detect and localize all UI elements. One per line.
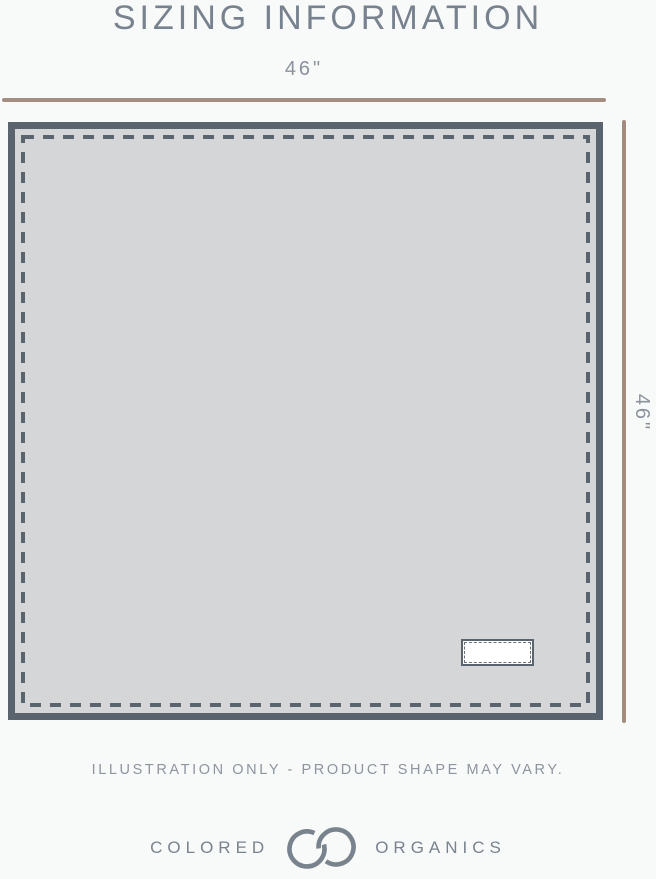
blanket-illustration: [8, 122, 603, 720]
illustration-caption: ILLUSTRATION ONLY - PRODUCT SHAPE MAY VA…: [0, 762, 656, 778]
co-monogram-icon: [284, 818, 360, 878]
brand-name-colored: COLORED: [150, 838, 269, 858]
brand-name-organics: ORGANICS: [375, 838, 506, 858]
height-dimension-label: 46": [631, 383, 653, 443]
brand-logo: COLORED ORGANICS: [0, 818, 656, 878]
care-tag-stitch-line: [464, 642, 531, 663]
care-tag: [461, 639, 534, 666]
page-title: SIZING INFORMATION: [0, 1, 656, 35]
height-measure-line: [622, 120, 626, 723]
stitch-line: [15, 129, 596, 713]
width-dimension-label: 46": [2, 58, 606, 81]
width-measure-line: [2, 98, 606, 102]
